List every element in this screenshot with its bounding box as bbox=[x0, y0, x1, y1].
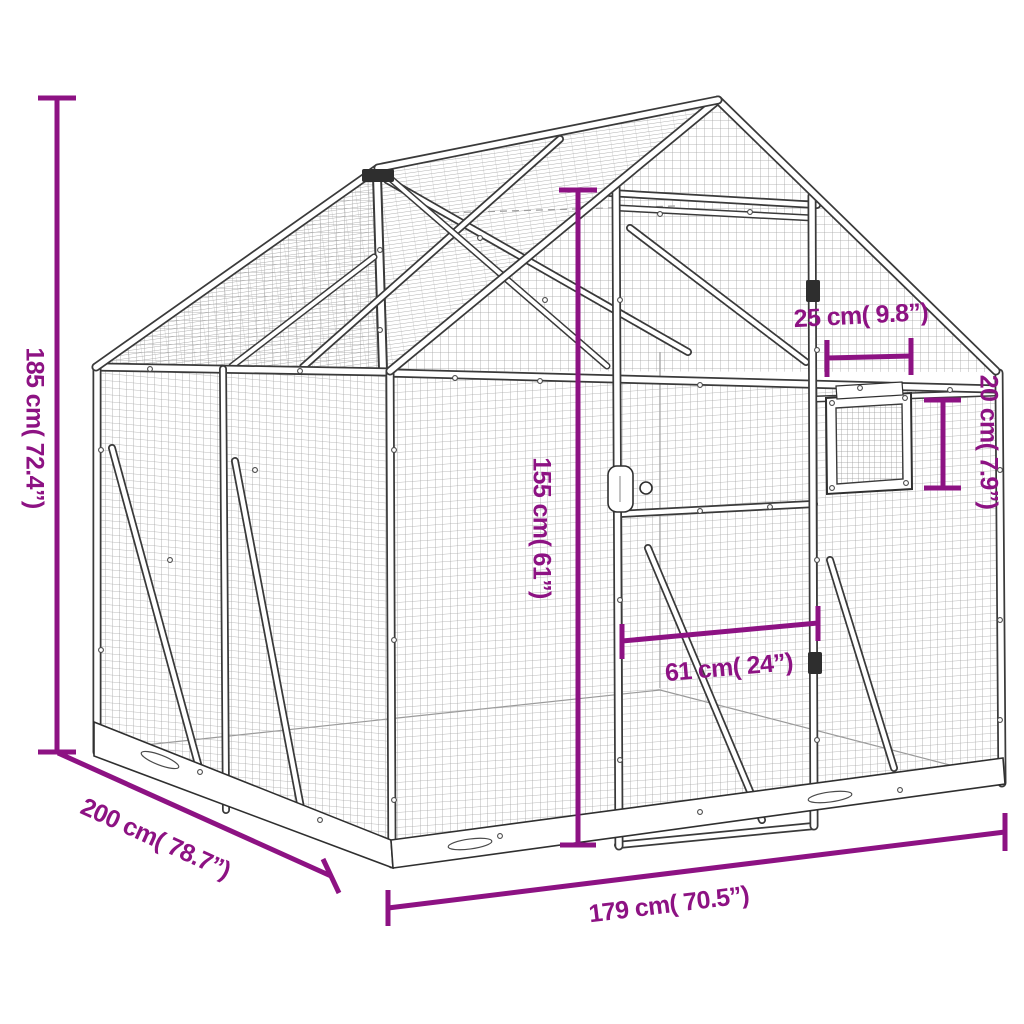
bolt bbox=[858, 386, 863, 391]
bolt bbox=[378, 248, 383, 253]
bolt bbox=[298, 369, 303, 374]
dimension-overall-height: 185 cm( 72.4”) bbox=[20, 98, 76, 752]
bolt bbox=[478, 236, 483, 241]
bolt bbox=[748, 210, 753, 215]
dimension-line bbox=[827, 356, 911, 358]
bolt bbox=[392, 798, 397, 803]
frame-beam bbox=[390, 372, 392, 864]
bolt bbox=[903, 396, 908, 401]
bolt bbox=[698, 509, 703, 514]
dimension-label: 200 cm( 78.7”) bbox=[76, 793, 234, 885]
bolt bbox=[543, 298, 548, 303]
bolt bbox=[453, 376, 458, 381]
bolt bbox=[815, 738, 820, 743]
bolt bbox=[538, 379, 543, 384]
bolt bbox=[99, 648, 104, 653]
frame-beam bbox=[223, 369, 226, 810]
bolt bbox=[99, 448, 104, 453]
aviary-diagram: 185 cm( 72.4”) 200 cm( 78.7”) 179 cm( 70… bbox=[0, 0, 1024, 1024]
bolt bbox=[698, 383, 703, 388]
bolt bbox=[898, 788, 903, 793]
bolt bbox=[815, 558, 820, 563]
bolt bbox=[318, 818, 323, 823]
bolt bbox=[498, 834, 503, 839]
door-hinge-bottom bbox=[808, 652, 822, 674]
bolt bbox=[904, 481, 909, 486]
bolt bbox=[618, 298, 623, 303]
bolt bbox=[768, 505, 773, 510]
dimension-label: 185 cm( 72.4”) bbox=[20, 347, 48, 508]
bolt bbox=[830, 401, 835, 406]
bolt bbox=[168, 558, 173, 563]
bolt bbox=[618, 758, 623, 763]
dimension-label: 20 cm( 7.9”) bbox=[974, 375, 1002, 510]
door-hinge-top bbox=[806, 280, 820, 302]
window bbox=[826, 382, 912, 494]
bolt bbox=[198, 770, 203, 775]
bolt bbox=[392, 448, 397, 453]
bolt bbox=[998, 718, 1003, 723]
ridge-bracket bbox=[362, 169, 394, 182]
bolt bbox=[253, 468, 258, 473]
bolt bbox=[948, 388, 953, 393]
bolt bbox=[998, 618, 1003, 623]
diagram-canvas: 185 cm( 72.4”) 200 cm( 78.7”) 179 cm( 70… bbox=[0, 0, 1024, 1024]
frame-beam bbox=[616, 184, 619, 846]
bolt bbox=[618, 598, 623, 603]
bolt bbox=[148, 367, 153, 372]
bolt bbox=[830, 486, 835, 491]
bolt bbox=[658, 212, 663, 217]
bolt bbox=[698, 810, 703, 815]
bolt bbox=[815, 348, 820, 353]
bolt bbox=[378, 328, 383, 333]
dimension-label: 155 cm( 61”) bbox=[527, 457, 555, 599]
bolt bbox=[392, 638, 397, 643]
dimension-label: 179 cm( 70.5”) bbox=[587, 881, 751, 928]
